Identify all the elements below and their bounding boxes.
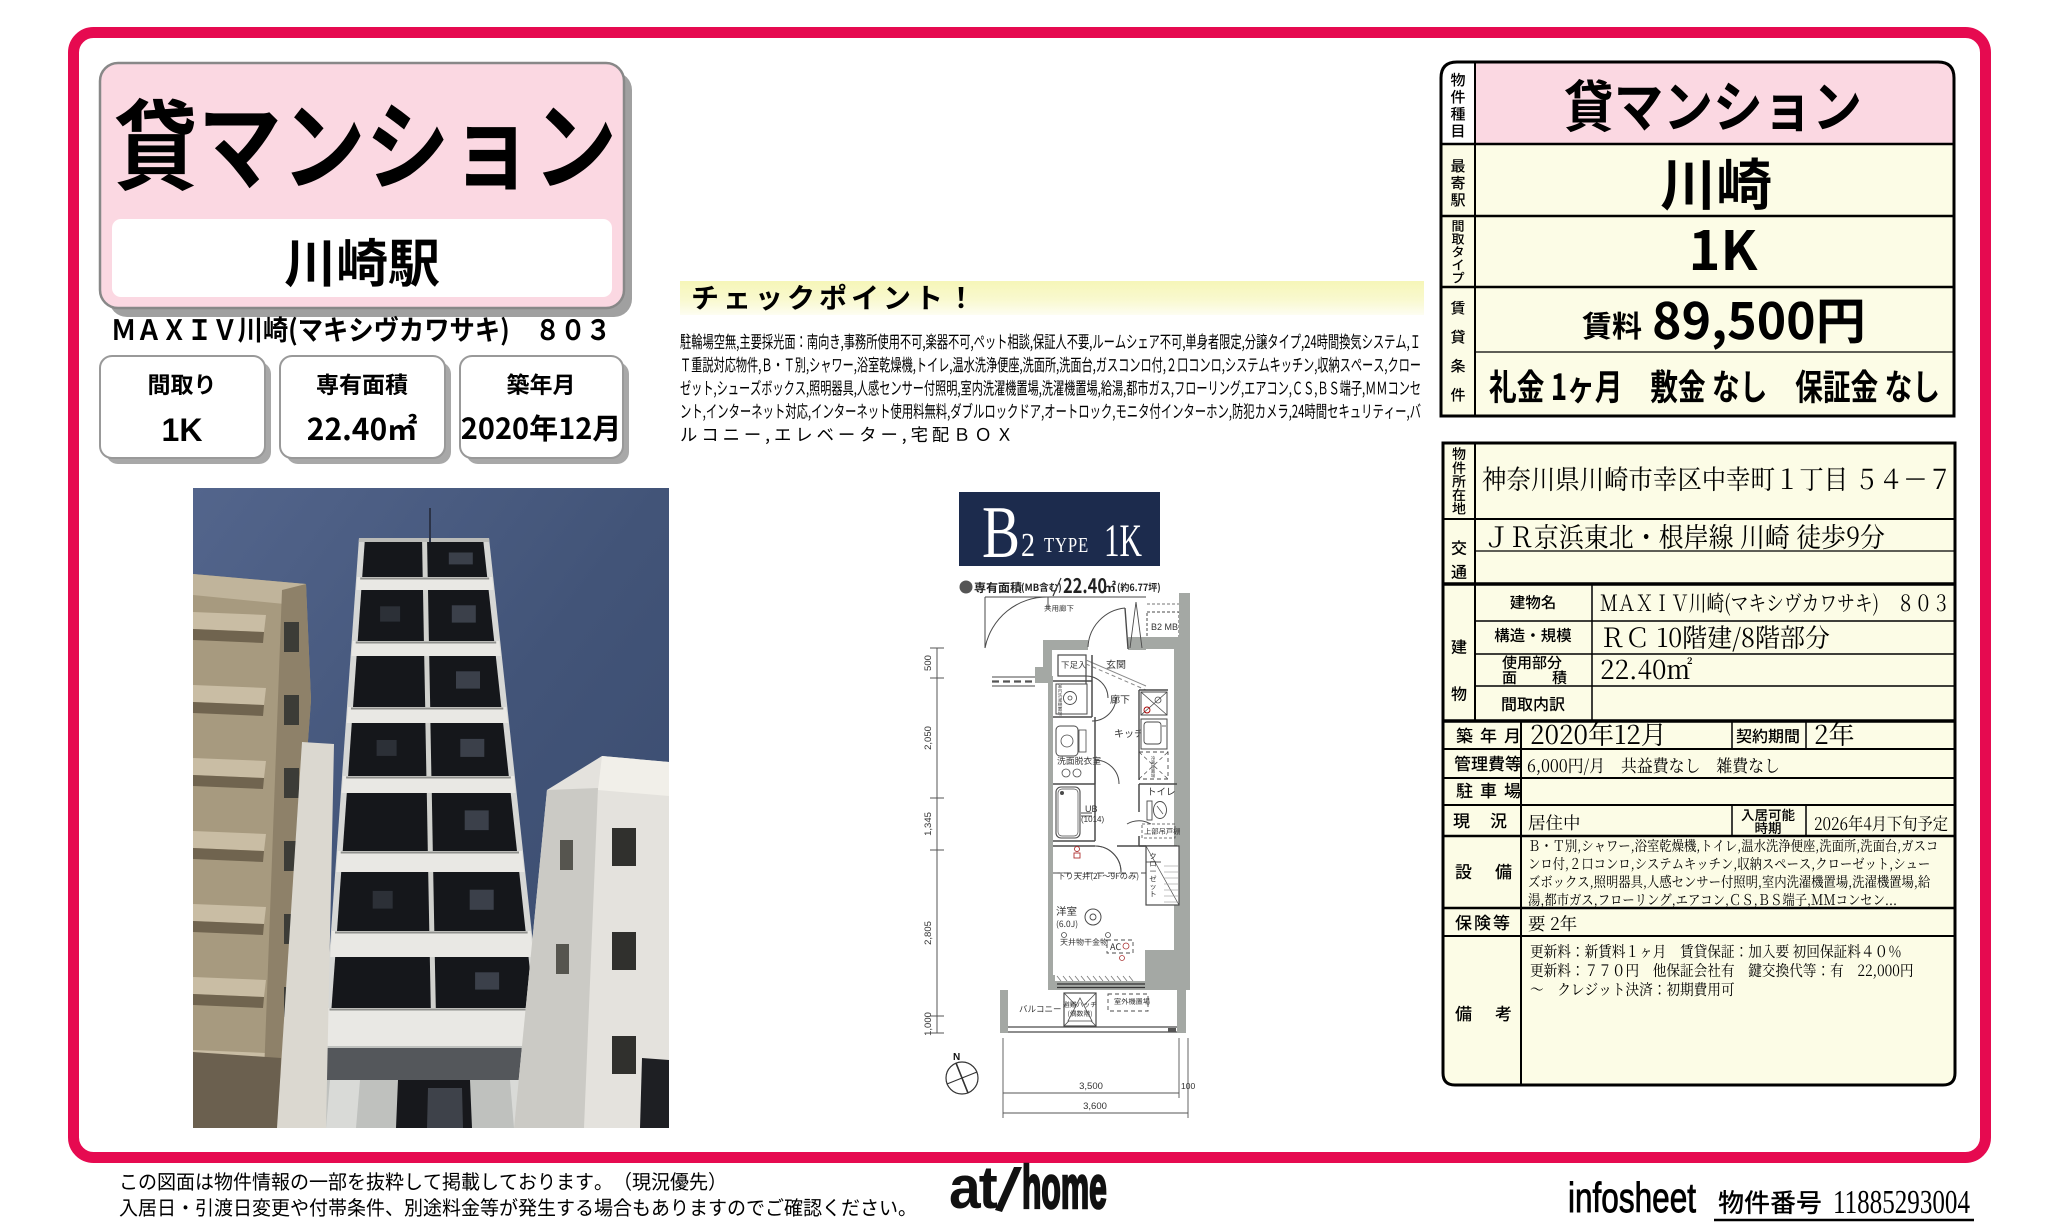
svg-text:1,000: 1,000 xyxy=(923,1012,934,1036)
svg-text:home: home xyxy=(1022,1156,1107,1222)
svg-text:B: B xyxy=(982,492,1020,574)
svg-text:2: 2 xyxy=(1021,527,1035,564)
svg-text:N: N xyxy=(953,1052,960,1063)
svg-text:500: 500 xyxy=(923,655,934,671)
svg-text:TYPE: TYPE xyxy=(1044,533,1089,557)
svg-text:at: at xyxy=(949,1155,997,1222)
svg-text:100: 100 xyxy=(1181,1081,1195,1091)
svg-text:2,050: 2,050 xyxy=(923,726,934,750)
svg-text:3,500: 3,500 xyxy=(1079,1081,1103,1092)
svg-text:1,345: 1,345 xyxy=(923,812,934,836)
svg-text:3,600: 3,600 xyxy=(1083,1101,1107,1112)
svg-text:B2 MB: B2 MB xyxy=(1151,622,1178,632)
svg-text:infosheet: infosheet xyxy=(1568,1174,1696,1221)
svg-text:11885293004: 11885293004 xyxy=(1833,1184,1970,1221)
svg-text:2,805: 2,805 xyxy=(923,921,934,945)
svg-text:1K: 1K xyxy=(1104,515,1142,567)
svg-text:1K: 1K xyxy=(162,412,203,448)
